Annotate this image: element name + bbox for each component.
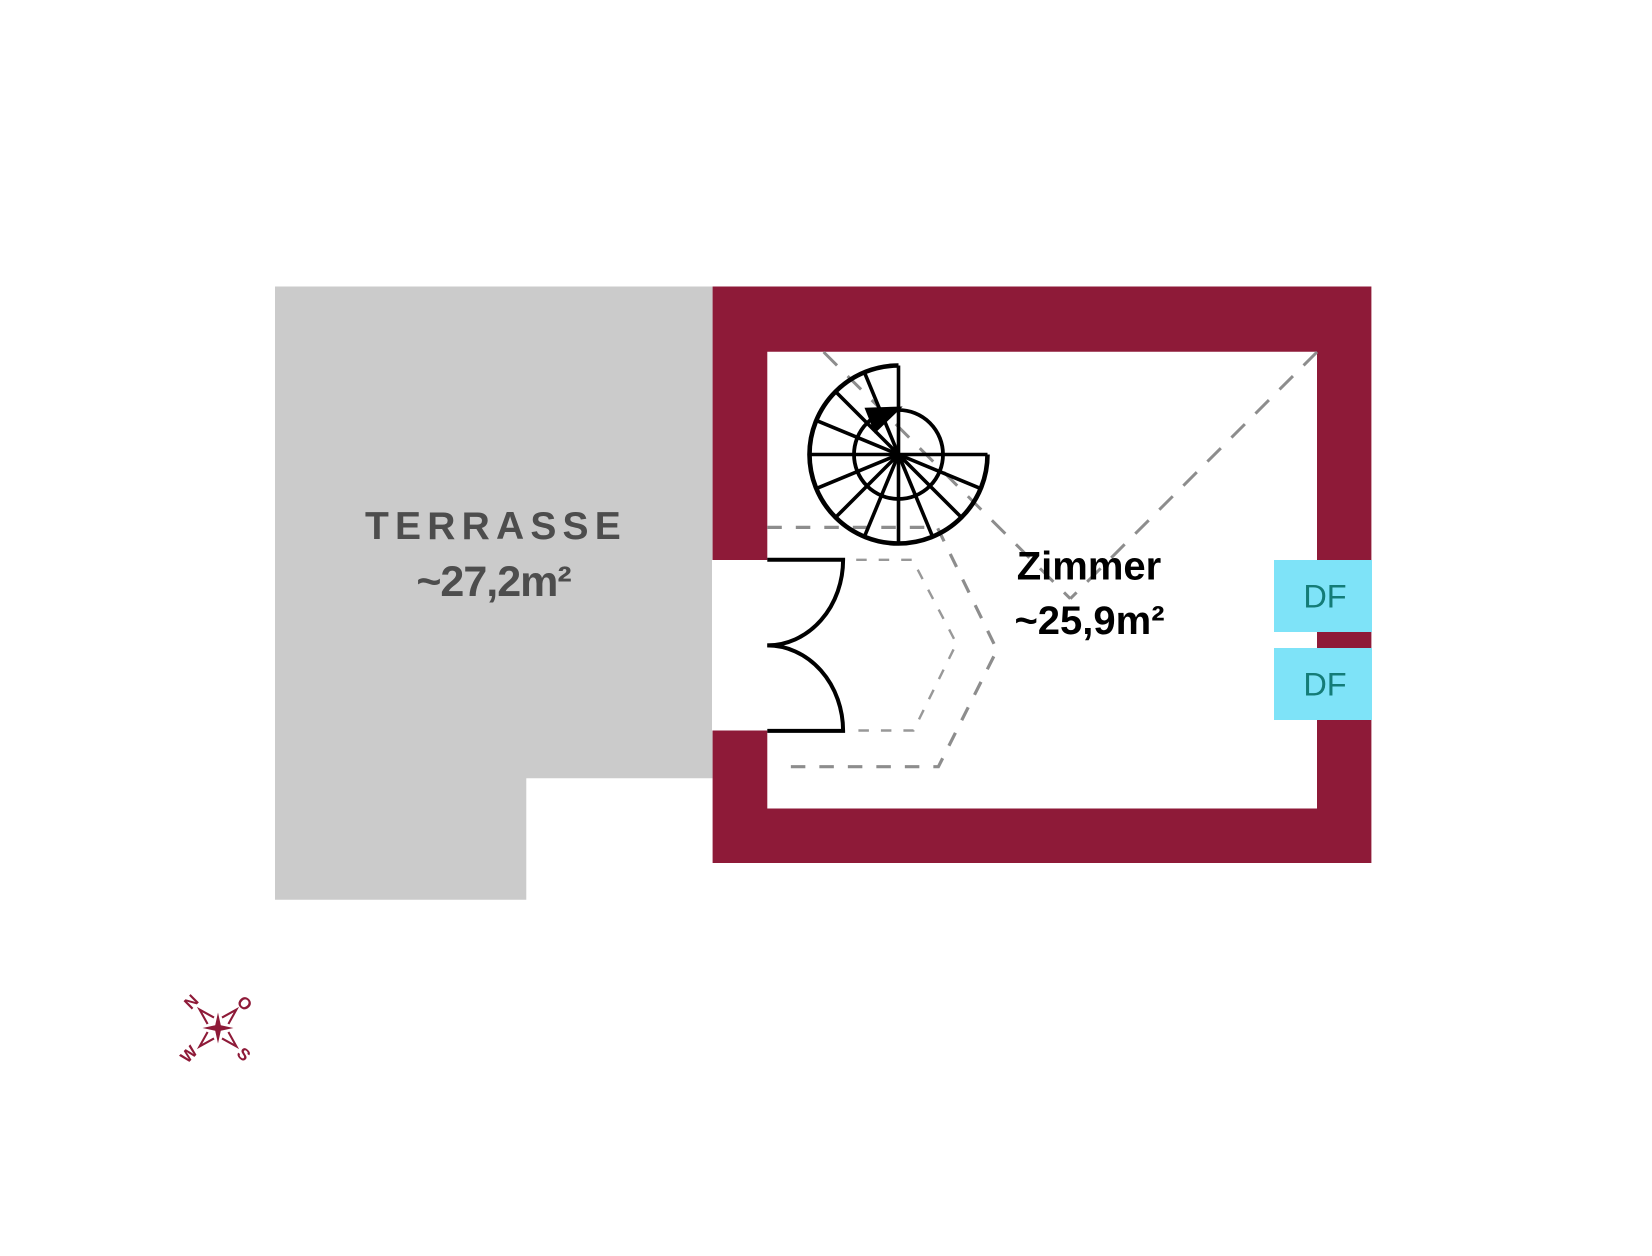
svg-text:~27,2m²: ~27,2m²: [416, 558, 571, 606]
svg-text:Zimmer: Zimmer: [1017, 545, 1162, 589]
svg-text:DF: DF: [1303, 667, 1346, 703]
svg-text:DF: DF: [1303, 579, 1346, 615]
svg-text:TERRASSE: TERRASSE: [365, 505, 627, 548]
svg-text:~25,9m²: ~25,9m²: [1014, 599, 1164, 643]
svg-text:W: W: [177, 1041, 202, 1066]
